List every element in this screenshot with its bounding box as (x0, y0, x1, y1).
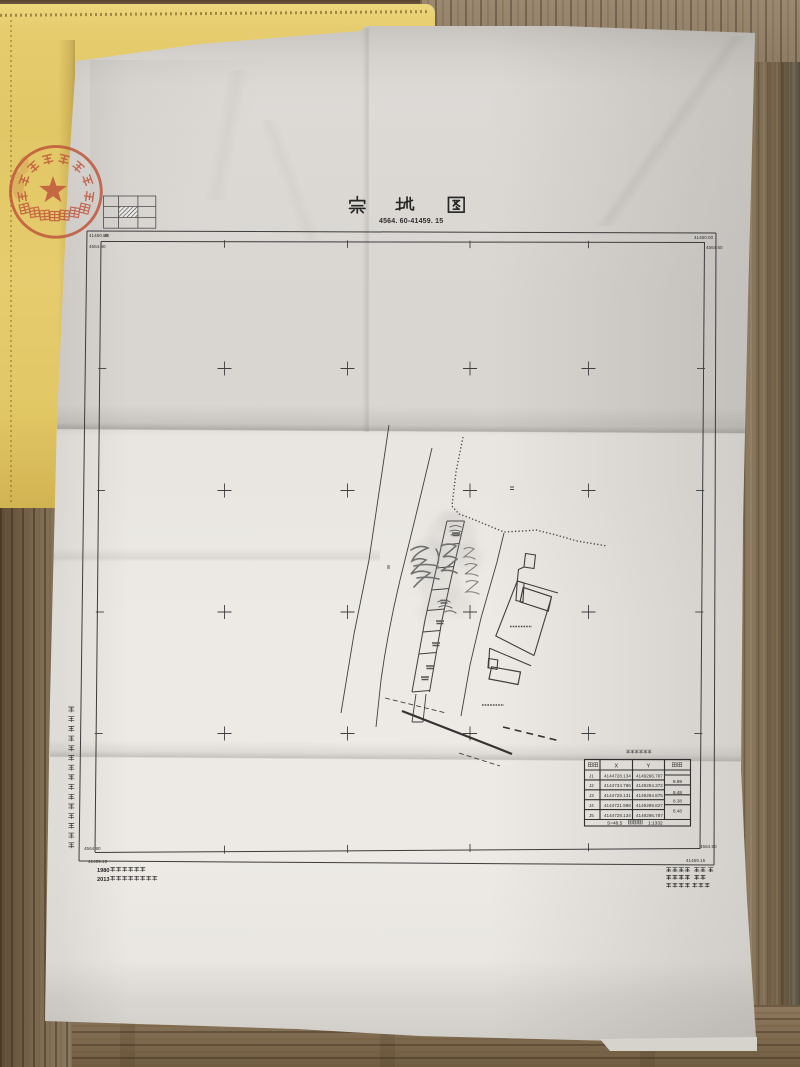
svg-text:4564. 60-41459. 15: 4564. 60-41459. 15 (379, 218, 443, 225)
svg-text:4149294.875: 4149294.875 (636, 793, 663, 798)
svg-text:4144728.131: 4144728.131 (604, 793, 631, 798)
svg-text:4144728.134: 4144728.134 (604, 773, 631, 778)
svg-text:4564.60: 4564.60 (706, 245, 723, 250)
svg-text:4149296.787: 4149296.787 (636, 813, 663, 818)
svg-text:8.48: 8.48 (673, 790, 682, 795)
svg-text:4564.90: 4564.90 (700, 844, 717, 849)
svg-text:J2: J2 (589, 783, 594, 788)
svg-text:8.38: 8.38 (673, 799, 682, 804)
svg-text:Y: Y (647, 764, 651, 770)
svg-text:4149296.787: 4149296.787 (636, 773, 663, 778)
svg-text:8.48: 8.48 (673, 809, 682, 814)
svg-text:4144728.134: 4144728.134 (604, 813, 631, 818)
svg-text:41459.15: 41459.15 (88, 859, 108, 864)
svg-text:1980: 1980 (97, 868, 109, 874)
svg-text:2013: 2013 (97, 877, 109, 883)
svg-text:4149294.372: 4149294.372 (636, 783, 663, 788)
svg-text:4149289.827: 4149289.827 (636, 803, 663, 808)
svg-text:J4: J4 (589, 803, 594, 808)
svg-text:41459.15: 41459.15 (686, 858, 706, 863)
svg-text:X: X (615, 764, 619, 770)
svg-text:J5: J5 (589, 813, 594, 818)
svg-text:J1: J1 (589, 773, 594, 778)
svg-text:4564.60: 4564.60 (89, 244, 106, 249)
svg-text:J3: J3 (589, 793, 594, 798)
svg-text:8.89: 8.89 (673, 779, 682, 784)
svg-text:1:1332: 1:1332 (648, 821, 663, 827)
svg-text:4564.90: 4564.90 (84, 846, 101, 851)
svg-text:40: 40 (104, 233, 110, 238)
svg-text:4144734.786: 4144734.786 (604, 783, 631, 788)
svg-text:S=48.5: S=48.5 (607, 821, 623, 827)
svg-text:41460.00: 41460.00 (694, 235, 714, 240)
svg-text:4144721.988: 4144721.988 (604, 803, 631, 808)
